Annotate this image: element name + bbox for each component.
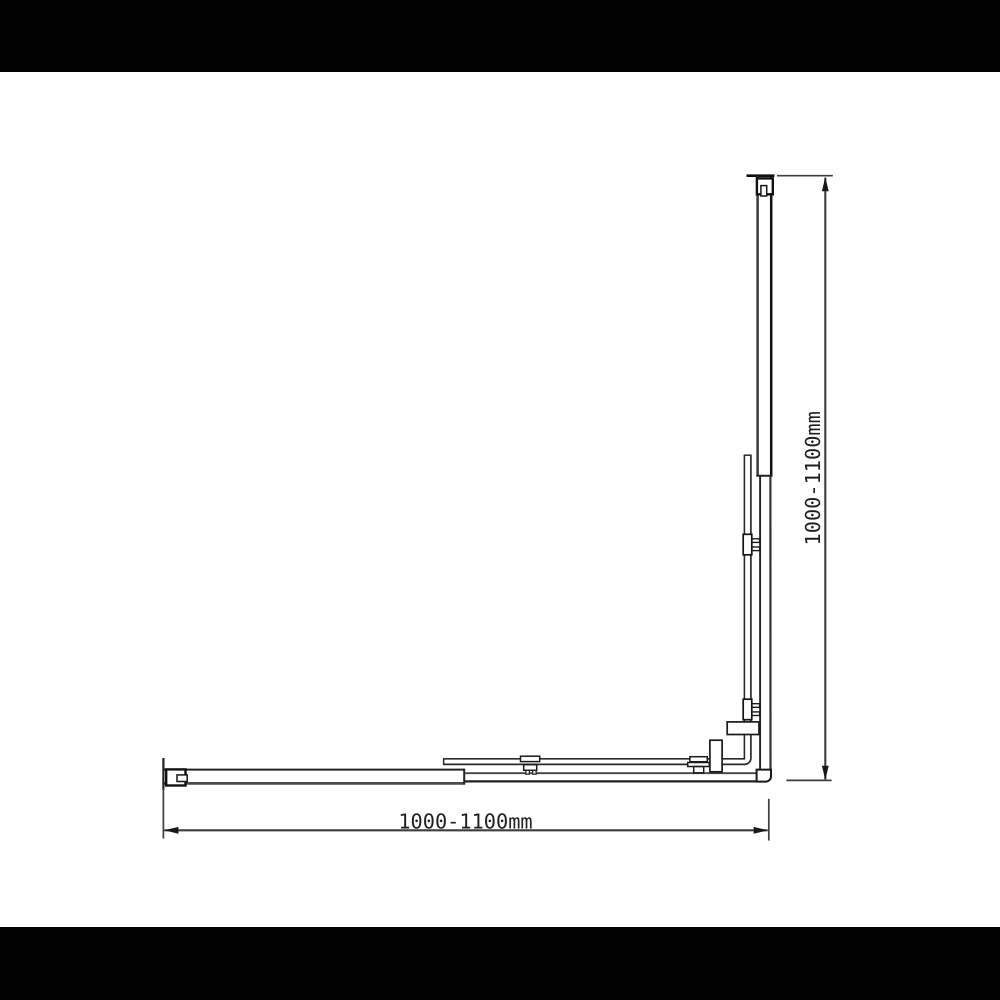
height-dimension-arrow-up [822,177,829,191]
top-wall-bracket-notch [761,186,767,196]
glass-clamp-upper [743,534,759,555]
glass-clamp-upper-plate [743,534,752,555]
glass-clamp-lower-plate [743,699,752,720]
glass-clamp-bottom-corner [688,757,710,773]
glass-clamp-bottom-mid-leg-left [526,770,529,774]
horizontal-wall-profile [163,758,757,790]
corner-block [710,740,722,772]
glass-panel [444,455,752,765]
drawing-canvas: 1000-1100mm 1000-1100mm [0,0,1000,1000]
width-dimension-arrow-right [754,827,768,834]
glass-clamp-bottom-mid-shoe [524,765,537,771]
glass-panel-inner-edge [444,456,745,759]
glass-panel-outer-edge [444,456,751,765]
glass-clamp-bottom-mid-plate [521,756,540,761]
glass-clamp-lower [743,699,759,720]
glass-clamp-bottom-mid [521,756,540,774]
top-wall-bracket [757,178,773,196]
left-wall-bracket-notch [177,775,187,782]
height-dimension-arrow-down [822,766,829,780]
corner-bracket [727,722,759,735]
glass-clamp-bottom-corner-plate [690,757,707,762]
glass-clamp-bottom-mid-leg-right [533,770,536,774]
left-wall-bracket [166,769,187,785]
glass-clamp-bottom-corner-stem [694,767,704,773]
height-dimension-label: 1000-1100mm [801,411,825,545]
width-dimension-label: 1000-1100mm [398,809,532,833]
corner-connector [757,770,771,782]
technical-drawing: 1000-1100mm 1000-1100mm [0,0,1000,1000]
width-dimension-arrow-left [164,827,178,834]
width-dimension: 1000-1100mm [163,788,768,841]
height-dimension: 1000-1100mm [777,176,833,781]
